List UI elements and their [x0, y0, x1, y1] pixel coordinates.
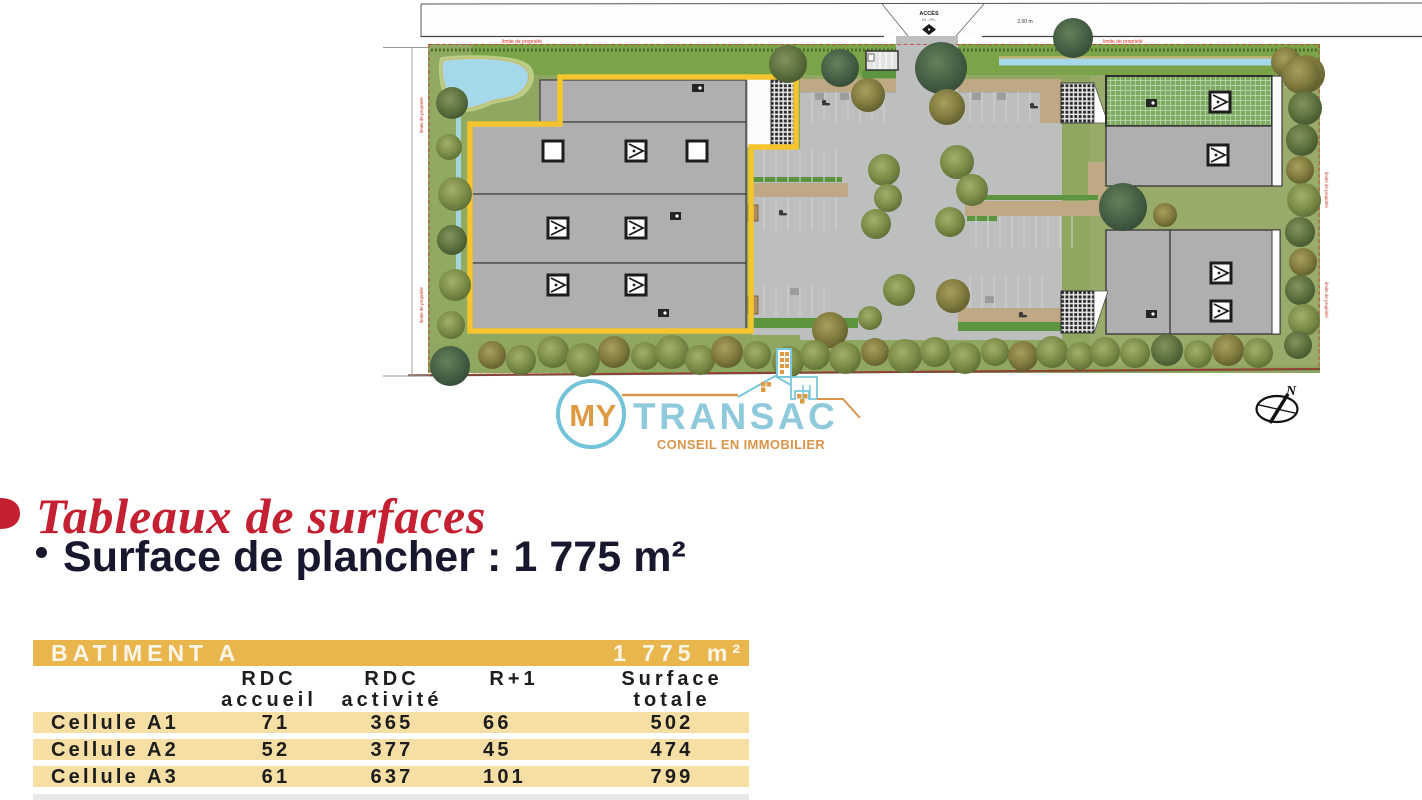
- svg-text:MY: MY: [569, 398, 617, 433]
- svg-text:limite de propriété: limite de propriété: [419, 287, 424, 323]
- svg-text:TRANSAC: TRANSAC: [633, 396, 838, 437]
- svg-text:limite de propriété: limite de propriété: [1103, 39, 1143, 45]
- svg-text:CONSEIL EN IMMOBILIER: CONSEIL EN IMMOBILIER: [657, 437, 825, 452]
- svg-text:limite de propriété: limite de propriété: [419, 97, 424, 133]
- svg-text:limite de propriété: limite de propriété: [1324, 172, 1329, 208]
- svg-text:2.00 m: 2.00 m: [1017, 19, 1032, 25]
- svg-text:V.L. / P.L.: V.L. / P.L.: [922, 18, 937, 22]
- svg-text:limite de propriété: limite de propriété: [1324, 282, 1329, 318]
- svg-text:ACCÈS: ACCÈS: [919, 9, 939, 17]
- svg-text:N: N: [1285, 384, 1297, 399]
- svg-text:limite de propriété: limite de propriété: [502, 39, 542, 45]
